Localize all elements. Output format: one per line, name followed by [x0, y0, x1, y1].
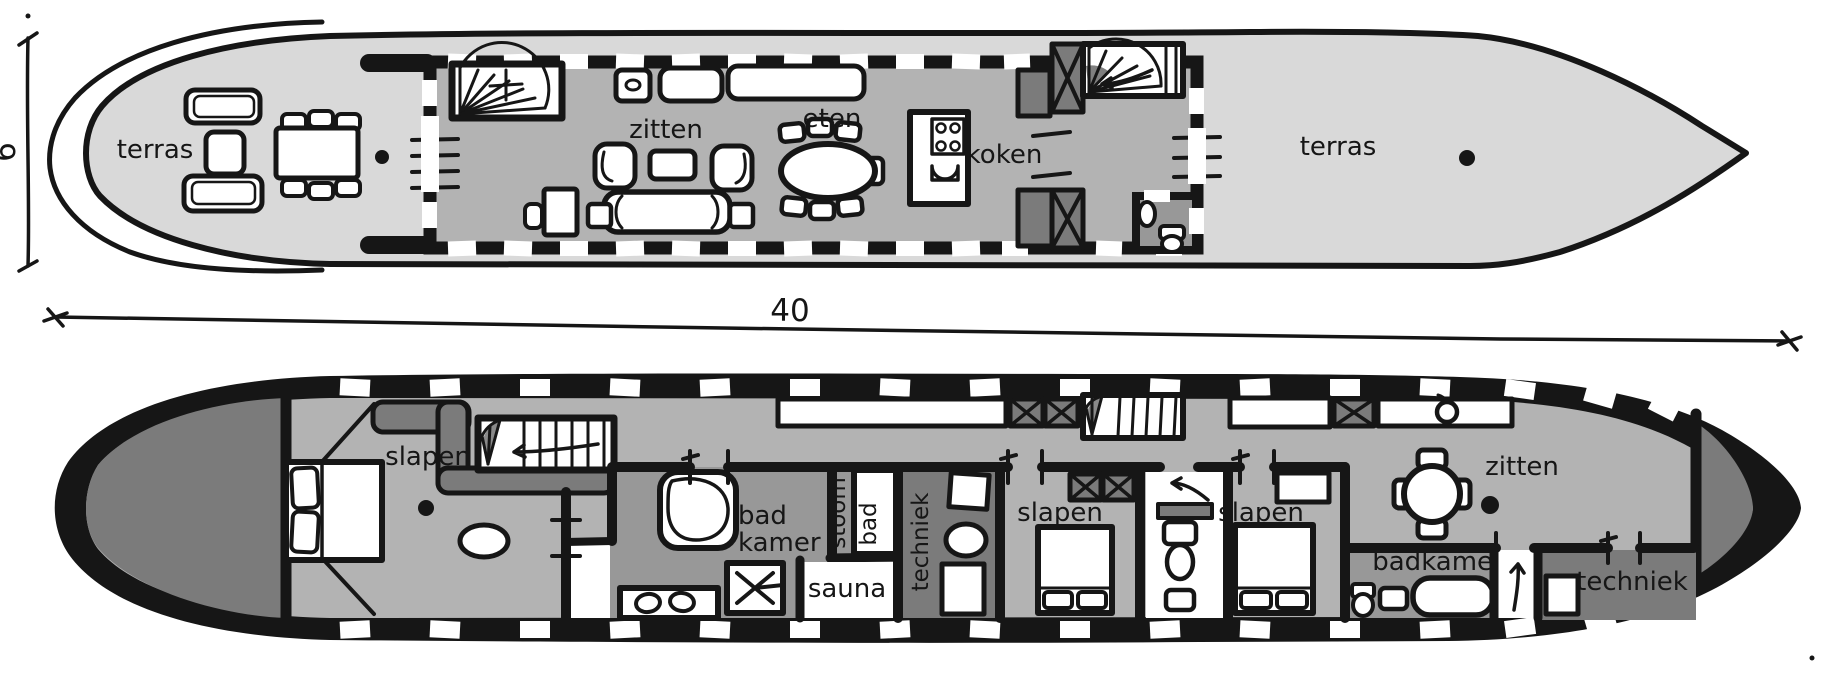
pillow	[291, 467, 319, 508]
room-label-terras-fore: terras	[117, 135, 194, 165]
room-label-zitten: zitten	[629, 115, 703, 145]
shaft-hatched	[1052, 44, 1083, 112]
chair	[779, 123, 805, 142]
dimension-width-value: 6	[0, 142, 23, 162]
hall	[566, 542, 610, 618]
side-table	[730, 204, 753, 227]
window	[1189, 88, 1204, 114]
bathroom-mid	[1146, 467, 1228, 618]
sofa-large	[604, 192, 730, 232]
pillow	[1277, 592, 1307, 608]
room-label-eten: eten	[803, 104, 862, 134]
boiler-icon	[946, 524, 986, 556]
chair	[309, 183, 333, 199]
room-label-sauna: sauna	[808, 574, 886, 604]
washer-icon	[949, 473, 989, 510]
chair	[309, 111, 333, 127]
room-label-zitten-aft: zitten	[1485, 452, 1559, 482]
window	[422, 80, 437, 106]
room-label-techniek-aft: techniek	[1576, 567, 1688, 597]
washbasin-icon	[1166, 590, 1194, 610]
staircase-lower-fore	[478, 418, 614, 470]
room-label-terras-aft: terras	[1300, 132, 1377, 162]
room-label-stoombad-bad: bad	[856, 502, 882, 545]
floor-plan-drawing: terras	[0, 0, 1840, 674]
chair	[810, 202, 834, 219]
lower-deck-plan: slapen ba	[55, 374, 1801, 643]
window	[1189, 208, 1204, 234]
wc-room	[1136, 190, 1196, 252]
chair	[781, 197, 807, 216]
floor-plan-page: terras	[0, 0, 1840, 674]
floor-dot	[418, 500, 434, 516]
side-table	[206, 132, 244, 174]
shelf	[1158, 504, 1212, 518]
staircase-lower-mid	[1083, 395, 1183, 438]
window	[422, 202, 437, 228]
coffee-table	[650, 151, 695, 179]
vestibule-aft	[1494, 550, 1538, 618]
bathtub	[1413, 578, 1493, 615]
shaft-hatched	[1070, 474, 1134, 500]
side-table	[616, 70, 650, 101]
room-label-slapen-aft: slapen	[1218, 498, 1304, 528]
toilet-icon	[1164, 522, 1196, 544]
shaft-hatched	[1052, 190, 1083, 248]
galley-counter	[1230, 395, 1512, 427]
side-table	[588, 204, 611, 227]
corridor-counter	[778, 399, 1006, 426]
chair	[336, 180, 360, 196]
staircase-upper-aft	[1083, 39, 1183, 96]
pillow	[1241, 592, 1271, 608]
dining-table	[276, 128, 358, 178]
room-label-badkamer-fore-line1: bad	[738, 501, 787, 531]
chair	[282, 180, 306, 196]
dining-table-oval	[781, 144, 875, 198]
door	[942, 564, 984, 614]
sofa	[728, 66, 864, 99]
ink-speck	[1810, 656, 1815, 661]
washbasin-icon	[1380, 588, 1407, 609]
desk	[544, 189, 577, 235]
wall	[566, 541, 612, 542]
pillow	[291, 511, 319, 552]
wall	[830, 557, 898, 558]
sofa	[660, 68, 722, 101]
ink-speck	[26, 14, 31, 19]
washbasin-icon	[1139, 202, 1155, 226]
dimension-width: 6	[0, 33, 37, 271]
apple-icon	[1437, 402, 1457, 422]
room-label-koken: koken	[966, 140, 1043, 170]
bulwark	[360, 54, 436, 72]
pillow	[1078, 592, 1106, 608]
chair	[525, 204, 542, 228]
shaft-hatched	[1010, 399, 1078, 426]
room-label-stoom: stoom	[825, 477, 851, 549]
cabinet-block	[1018, 190, 1052, 246]
room-label-badkamer-fore-line2: kamer	[738, 528, 821, 558]
room-label-slapen-fore: slapen	[385, 442, 471, 472]
upper-deck-plan: terras	[50, 22, 1746, 271]
dimension-length-value: 40	[770, 293, 809, 329]
rug	[460, 525, 508, 557]
floor-dot	[1481, 496, 1499, 514]
kitchen-island	[910, 112, 968, 204]
cabinet-block	[1018, 70, 1050, 116]
equipment-box	[1546, 576, 1578, 614]
round-table	[1404, 466, 1460, 522]
dimension-length: 40	[44, 293, 1801, 350]
room-label-slapen-mid: slapen	[1017, 498, 1103, 528]
bulwark	[360, 236, 436, 254]
room-label-techniek-mid: techniek	[908, 492, 934, 592]
pillow	[1044, 592, 1072, 608]
bollard-dot	[375, 150, 389, 164]
bollard-dot	[1459, 150, 1475, 166]
